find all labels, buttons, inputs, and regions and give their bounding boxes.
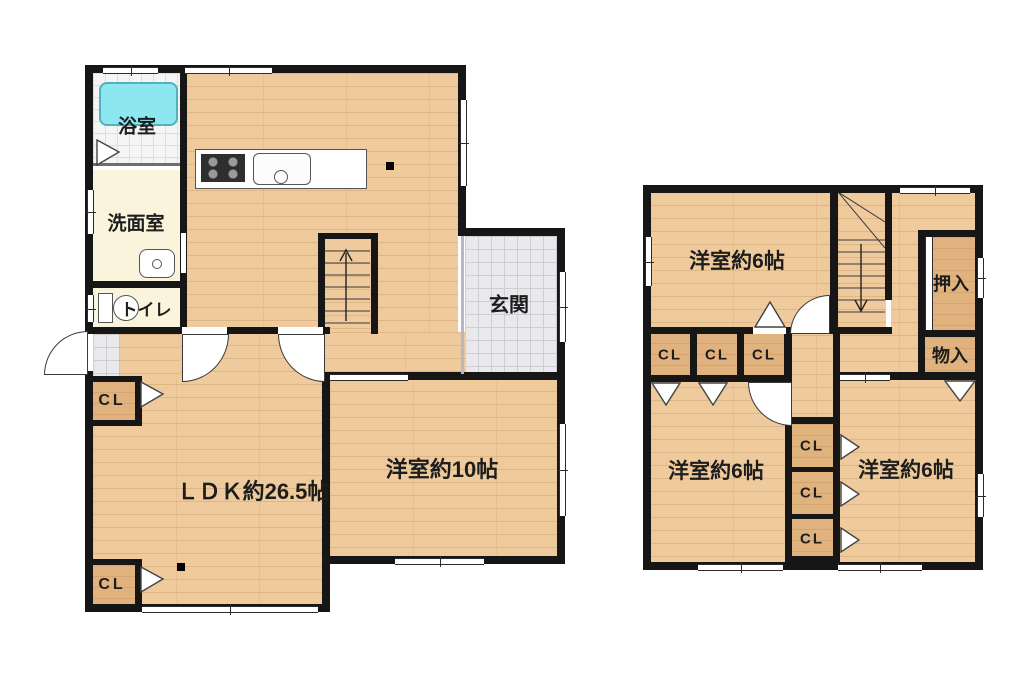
opening-western10-door [330,374,408,381]
window-2f-rightroom-bottom [838,564,922,571]
monoire-folding-door-icon [944,380,976,402]
wall-clrow-bottom [643,375,792,382]
wall-stairs-left [318,233,325,334]
opening-washroom-door [181,233,186,273]
closet-label: CL [98,576,125,594]
door-gap-2f-toproom [753,327,786,334]
window-kitchen-top [185,67,272,74]
wall-clstack-div2 [792,514,840,519]
closet-stack2-folding-door-icon [840,481,860,507]
window-oshiire-right [977,258,984,298]
wall-oshiire-top [918,230,983,237]
window-washroom-left [87,190,94,234]
room-label-toilet: トイレ [121,296,172,321]
door-gap-hall-ldk-1 [182,327,227,334]
stairs-down-treads-and-arrow [838,192,885,327]
room-label-bath: 浴室 [118,112,156,139]
washbasin-drain [152,259,162,269]
wall-clstack-bottom [785,556,840,564]
wall-western10-left [322,372,330,564]
stairs-up [322,237,370,332]
door-2f-rightroom [840,374,890,381]
entrance-step-line [461,236,464,374]
closet1-folding-door-icon [140,381,164,408]
closet-label: CL [800,485,824,502]
closet-label: CL [800,531,824,548]
closet2-folding-door-icon [140,566,164,593]
closet-stack1-folding-door-icon [840,434,860,460]
room-label-washroom: 洗面室 [107,209,164,236]
room-label-ldk: ＬＤＫ約26.5帖 [177,474,330,506]
hall-floor [322,332,465,374]
pillar-dot [386,162,394,170]
closet-a-folding-door-icon [651,382,681,406]
toilet-tank-icon [98,293,113,323]
wall-stairs-right [371,233,378,334]
room-label-western6-right: 洋室約6帖 [858,454,954,484]
wall-cl1-bottom [85,420,142,426]
stove-icon [201,154,245,182]
wall-bath-column [180,65,187,330]
window-toilet-left [87,295,94,322]
backdoor-hall [119,334,180,376]
kitchen-sink-drain [274,170,288,184]
room-label-entrance: 玄関 [489,289,529,318]
wall-cl2-top [85,559,142,565]
window-2f-toproom-left [645,237,652,286]
room-label-western6-top: 洋室約6帖 [689,245,785,275]
window-bath-top [103,67,158,74]
stairs-down [838,192,885,327]
wall-clstack-div1 [792,467,840,472]
window-western10-bottom [395,558,484,565]
wall-wash-bottom [85,281,187,288]
wall-stairs2-right [885,185,892,300]
closet-label: CL [658,347,682,364]
room-label-oshiire: 押入 [933,270,969,296]
window-ldk-bottom [142,606,318,613]
window-2f-top [900,187,970,194]
stairs-up-treads-and-arrow [322,237,370,332]
closet-label: CL [752,347,776,364]
wall-mid-vertical [833,327,840,380]
room-label-western10: 洋室約10帖 [386,452,498,484]
floorplan-canvas: 浴室 洗面室 トイレ 玄関 ＬＤＫ約26.5帖 洋室約10帖 CL CL [0,0,1024,683]
entrance-front-door [559,272,566,342]
wall-clstack-top [785,417,840,424]
wall-oshiire-left [918,230,925,378]
room-label-monoire: 物入 [932,342,968,368]
bath-folding-door-icon [96,139,120,166]
window-2f-rightroom-right [977,474,984,517]
wall-clrow-divider-2 [737,327,744,382]
opening-stairs2-entry [886,300,891,327]
pillar-dot [177,563,185,571]
window-western10-right [559,424,566,516]
closet-label: CL [98,392,125,410]
closet-c-folding-door-icon [754,301,786,328]
wall-clrow-divider-1 [690,327,697,382]
wall-stairs2-left [830,185,838,334]
window-2f-leftroom-bottom [698,564,783,571]
wall-oshiire-bottom [918,330,983,337]
wall-clrow-right [784,327,792,382]
window-ldk-right [460,100,467,186]
closet-label: CL [800,438,824,455]
door-gap-hall-ldk-2 [278,327,323,334]
backdoor-tile [93,334,119,376]
closet-label: CL [705,347,729,364]
wall-cl1-top [85,376,142,382]
oshiire-sliding-door [925,237,933,330]
wall-stairs-top [318,233,378,239]
closet-stack3-folding-door-icon [840,527,860,553]
room-label-western6-left: 洋室約6帖 [668,455,764,485]
wall-entrance-top [458,228,565,236]
back-door-arc [44,331,88,375]
closet-b-folding-door-icon [698,382,728,406]
